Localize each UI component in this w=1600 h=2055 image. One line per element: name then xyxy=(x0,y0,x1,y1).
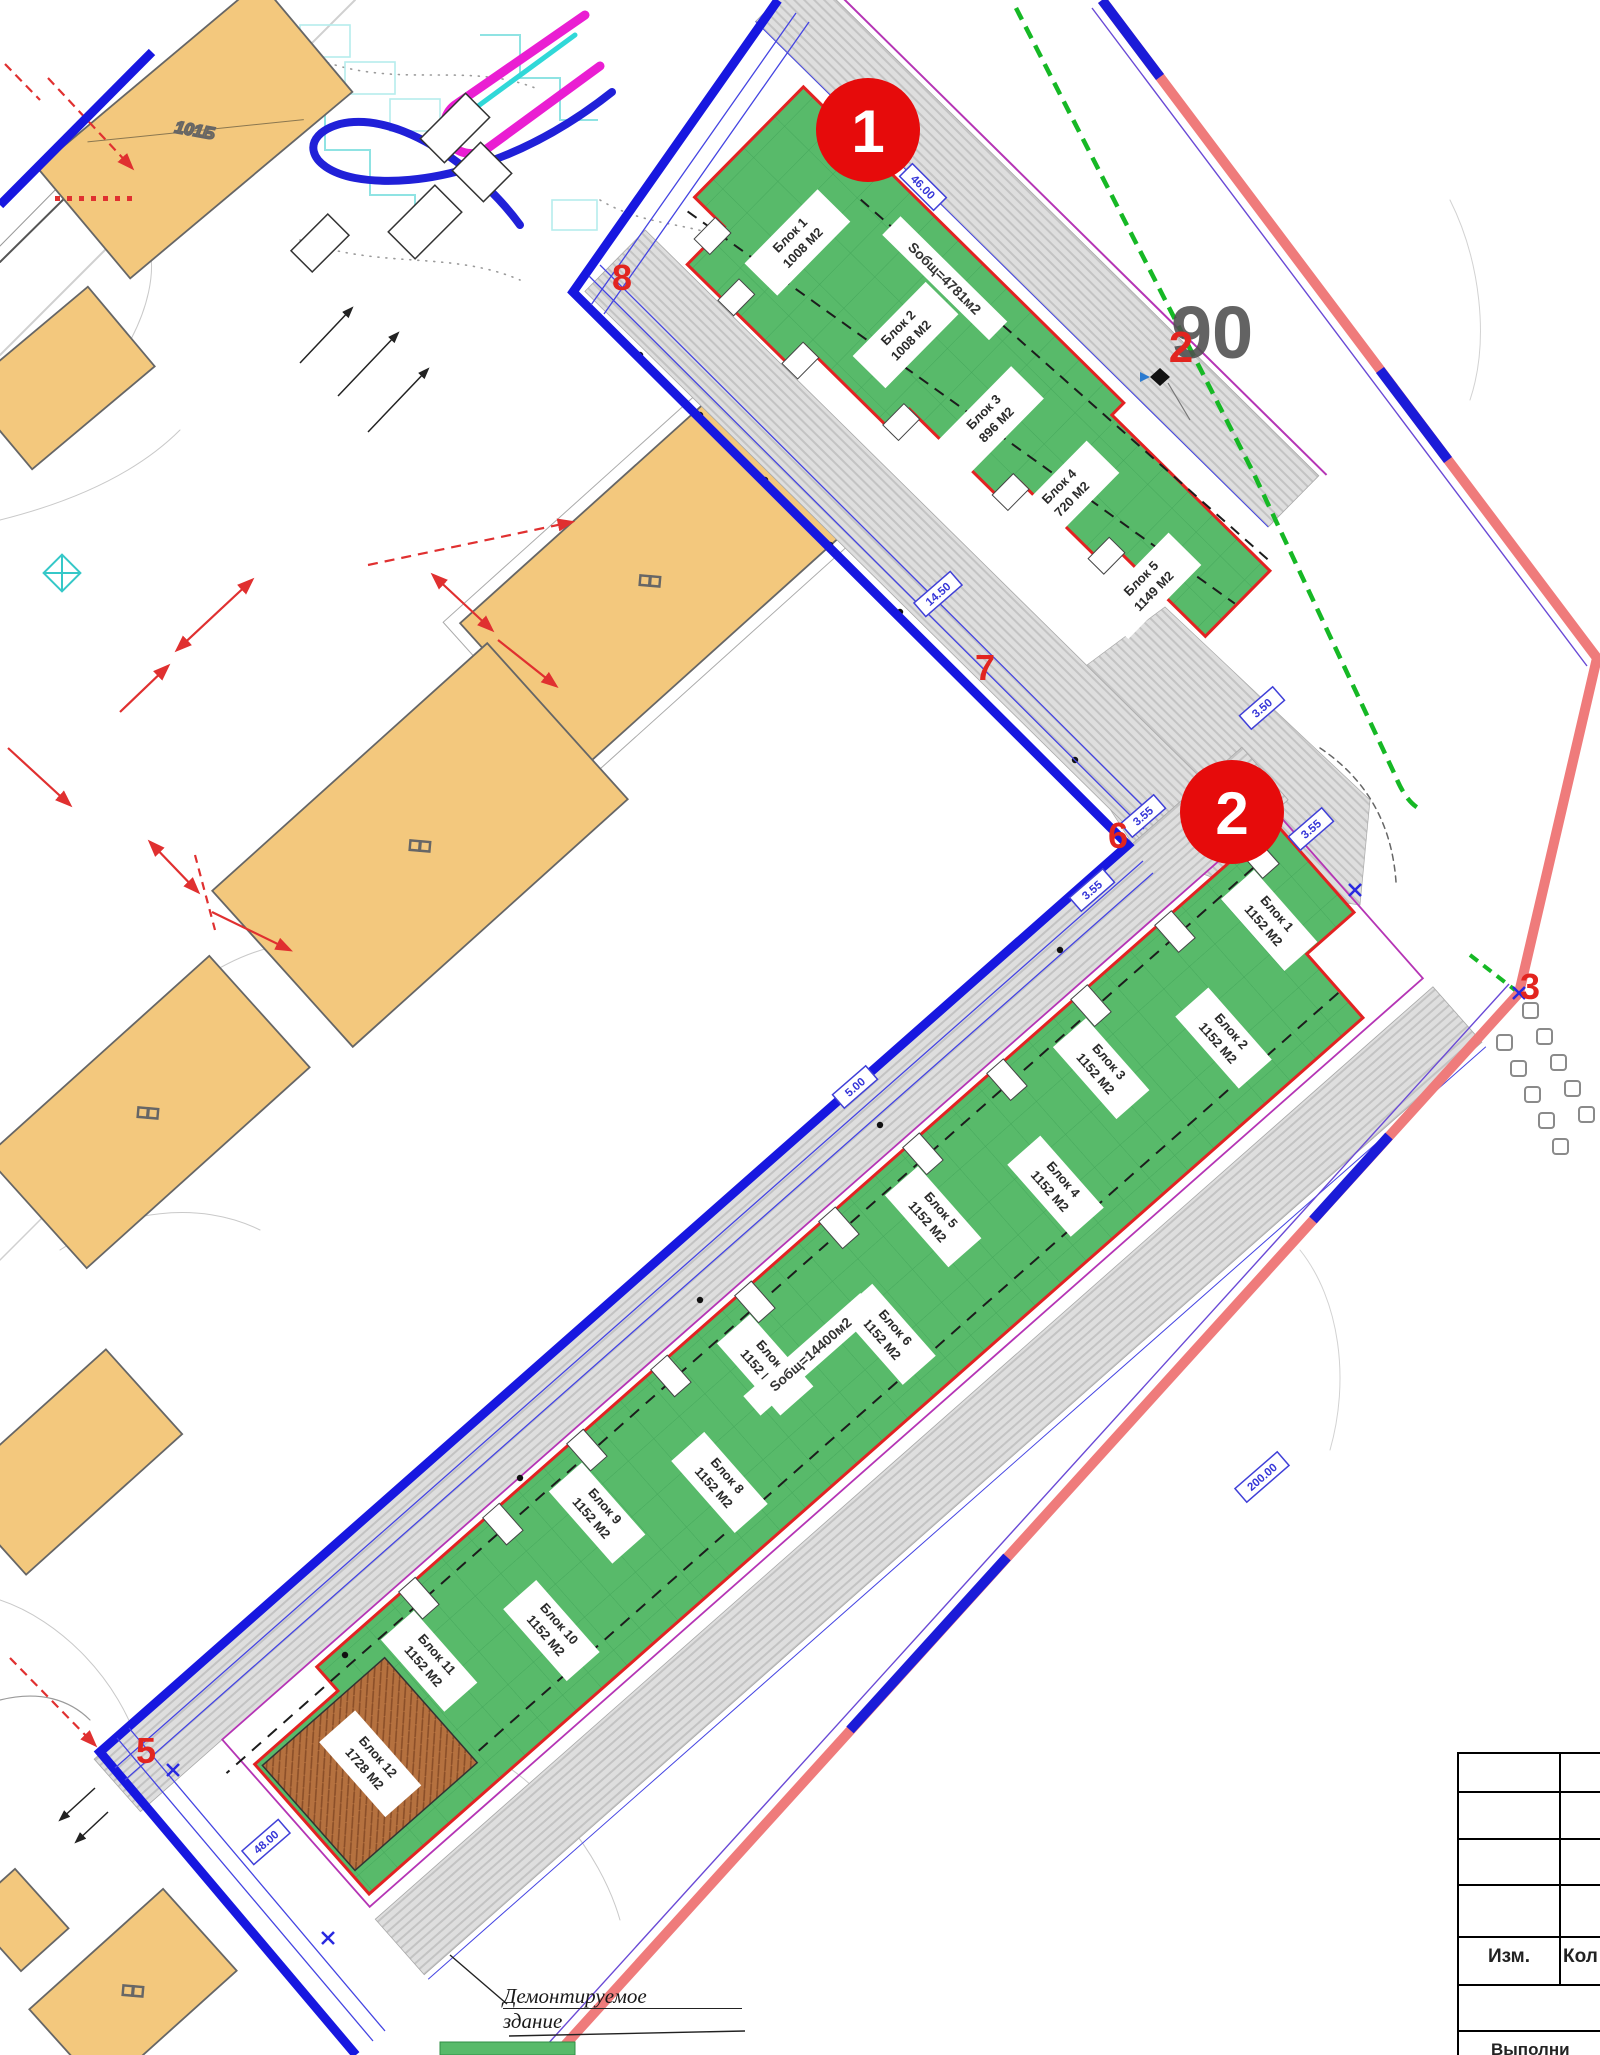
building-label: □□ xyxy=(122,1980,144,2001)
callout-line-1: Демонтируемое xyxy=(503,1984,742,2009)
title-block-col-izm: Изм. xyxy=(1459,1946,1559,1968)
annotation-marker-2[interactable]: 2 xyxy=(1180,760,1284,864)
svg-text:2: 2 xyxy=(1169,323,1193,372)
annotation-marker-1[interactable]: 1 xyxy=(816,78,920,182)
building-5: □□ xyxy=(0,956,310,1268)
svg-text:2: 2 xyxy=(1215,780,1248,847)
svg-text:7: 7 xyxy=(975,647,995,688)
planting-squares xyxy=(1497,1003,1594,1154)
title-block-col-kol: Кол xyxy=(1563,1946,1598,1968)
svg-text:8: 8 xyxy=(612,257,632,298)
building-label: □□ xyxy=(639,570,661,591)
building-7: □□ xyxy=(29,1889,236,2055)
svg-text:6: 6 xyxy=(1108,815,1128,856)
building-6 xyxy=(0,1349,182,1574)
boundary-blue-segment xyxy=(1102,0,1160,77)
demolition-callout: Демонтируемое здание xyxy=(503,1984,763,2033)
callout-line-2: здание xyxy=(503,2009,562,2033)
svg-text:1: 1 xyxy=(851,98,884,165)
svg-text:5: 5 xyxy=(136,1730,156,1771)
green-strip-bottom xyxy=(440,2042,575,2055)
boundary-blue-segment xyxy=(850,1557,1007,1730)
area1-group: Блок 1 1008 М2 Блок 2 1008 М2 Блок 3 896… xyxy=(536,0,1428,853)
building-2 xyxy=(0,287,155,470)
svg-text:3: 3 xyxy=(1520,966,1540,1007)
building-label: □□ xyxy=(137,1102,159,1123)
building-8 xyxy=(0,1869,69,1971)
boundary-blue-segment xyxy=(1380,370,1448,460)
title-block-table: Изм. Кол Выполни xyxy=(1457,1752,1600,2055)
building-label: □□ xyxy=(409,835,431,856)
cyan-box-symbol xyxy=(44,555,81,592)
site-plan-screenshot: 101Б □□ □□ □□ □□ xyxy=(0,0,1600,2055)
site-plan-drawing: 101Б □□ □□ □□ □□ xyxy=(0,0,1600,2055)
title-block-row-bottom: Выполни xyxy=(1491,2040,1570,2055)
